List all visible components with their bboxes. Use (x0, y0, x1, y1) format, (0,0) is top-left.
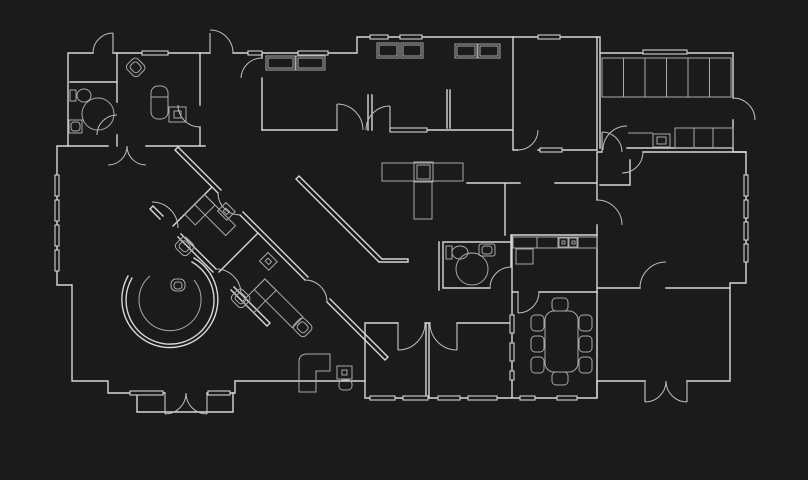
window (744, 175, 748, 196)
window (55, 225, 59, 246)
kitchen-counter (513, 237, 597, 248)
window (643, 50, 687, 54)
reception-desk-stem (414, 182, 432, 219)
wing-desk (194, 194, 235, 235)
window (55, 250, 59, 271)
conference-chair (552, 298, 568, 311)
curved-desk-edge (139, 276, 201, 331)
window (510, 343, 514, 361)
window (248, 51, 262, 55)
kitchen-sink-basin (559, 238, 568, 247)
conference-chair (579, 336, 592, 352)
kitchen-sink-faucet (572, 241, 575, 244)
window (520, 396, 535, 400)
window (744, 244, 748, 262)
window (438, 396, 460, 400)
wing-wall-northeast (296, 176, 408, 262)
cabinet-inner (480, 46, 498, 56)
window (744, 200, 748, 218)
window (55, 200, 59, 221)
cabinet-inner (379, 45, 397, 56)
wing-wall-southwest (150, 206, 270, 326)
wing-desk-monitor (218, 203, 236, 221)
window (130, 391, 163, 395)
window (403, 396, 428, 400)
turning-circle (82, 98, 114, 130)
kitchen-counter-dividers (537, 237, 577, 248)
window (208, 391, 230, 395)
floor-plan-canvas (0, 0, 808, 480)
door-leaves (113, 33, 687, 414)
interior-walls-storage-room (600, 53, 746, 152)
armchair (174, 235, 196, 257)
window (370, 396, 395, 400)
window (298, 51, 328, 55)
window (390, 128, 427, 132)
conference-chair (531, 357, 544, 373)
sink-basin (71, 122, 80, 131)
window (55, 175, 59, 196)
window (538, 35, 560, 39)
floor-plan-stage (0, 0, 808, 480)
toilet-tank (70, 90, 76, 101)
counter-sink (653, 134, 670, 147)
wing-desk-return (242, 279, 276, 313)
exam-recliner (151, 86, 168, 119)
kitchen-sink-faucet (562, 241, 565, 244)
cabinet-inner (268, 58, 293, 68)
toilet-tank (446, 246, 452, 259)
door-swings-wing (152, 193, 327, 302)
reception-desk-hub-inner (417, 165, 430, 179)
cabinet-inner (457, 46, 475, 56)
counter-sink-basin (657, 137, 666, 144)
window (510, 371, 514, 380)
wing-wall-middle (175, 147, 388, 360)
sink-basin (482, 246, 492, 254)
cabinet-inner (403, 45, 421, 56)
interior-walls-offices (365, 323, 512, 397)
window (744, 222, 748, 240)
toilet-bowl (77, 89, 91, 102)
curved-wall (122, 258, 218, 347)
desk-return (337, 366, 352, 379)
wing-desk-monitor (260, 253, 278, 271)
wing-desk-monitor-dot (265, 258, 271, 264)
conference-chair (531, 336, 544, 352)
interior-walls-bathroom (439, 235, 511, 290)
counter (675, 128, 733, 148)
conference-chair (552, 372, 568, 385)
desk-return-monitor (342, 370, 347, 375)
armchair (125, 56, 147, 78)
window (540, 148, 562, 152)
conference-chair (579, 315, 592, 331)
locker-dividers (624, 58, 710, 97)
waiting-desk (299, 354, 330, 392)
entry-vestibule (137, 393, 233, 412)
cabinet-inner (298, 58, 323, 68)
conference-chair (531, 315, 544, 331)
armchair-seat (129, 61, 142, 74)
turning-circle (456, 253, 488, 285)
window (510, 315, 514, 333)
window (370, 35, 388, 39)
window (557, 396, 577, 400)
fridge (516, 249, 533, 264)
armchair (292, 316, 314, 338)
conference-chair (579, 357, 592, 373)
window (468, 396, 497, 400)
conference-table (545, 311, 578, 372)
window (400, 35, 422, 39)
interior-walls-right-rooms (598, 160, 730, 288)
toilet-bowl (452, 246, 468, 259)
curved-desk-chair-seat (174, 282, 182, 289)
window (142, 51, 168, 55)
wing-office-dividers (173, 187, 258, 272)
reception-desk-bar (382, 163, 463, 181)
